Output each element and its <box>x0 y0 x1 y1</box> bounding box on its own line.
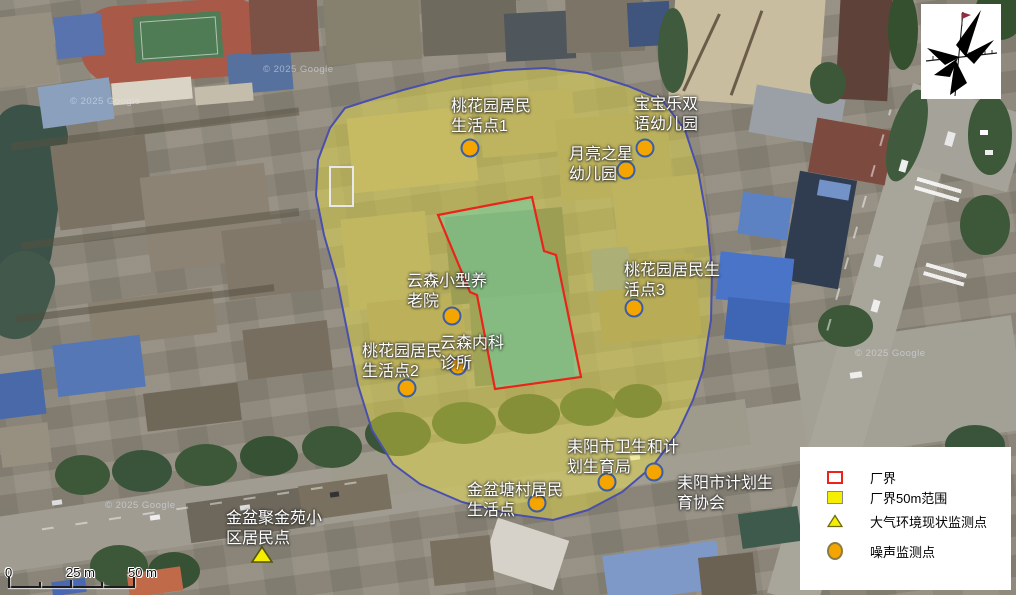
marker-label: 宝宝乐双 语幼儿园 <box>634 95 698 135</box>
satellite-map: © 2025 Google © 2025 Google © 2025 Googl… <box>0 0 1016 595</box>
scale-tick <box>101 582 103 588</box>
marker-label: 耒阳市计划生 育协会 <box>677 474 773 514</box>
noise-monitor-swatch-icon <box>827 542 843 560</box>
scale-label-25m: 25 m <box>66 565 95 580</box>
scale-bar: 0 25 m 50 m <box>0 558 190 595</box>
legend-item-factory-boundary: 厂界 <box>800 469 896 485</box>
legend-item-air-monitor: 大气环境现状监测点 <box>800 513 987 529</box>
noise-monitor-point[interactable] <box>461 139 480 158</box>
court-markings <box>140 16 218 59</box>
marker-label: 金盆聚金苑小 区居民点 <box>226 509 322 549</box>
legend: 厂界 厂界50m范围 大气环境现状监测点 噪声监测点 <box>800 447 1011 590</box>
legend-item-buffer: 厂界50m范围 <box>800 489 947 505</box>
marker-label: 桃花园居民 生活点2 <box>362 342 442 382</box>
noise-marker-icon <box>625 299 644 318</box>
scale-tick <box>133 577 135 588</box>
imagery-watermark: © 2025 Google <box>105 500 176 511</box>
noise-marker-icon <box>461 139 480 158</box>
buffer-swatch-icon <box>827 491 843 504</box>
marker-label: 月亮之星 幼儿园 <box>569 145 633 185</box>
legend-label: 噪声监测点 <box>870 542 935 561</box>
legend-label: 厂界50m范围 <box>870 488 947 507</box>
marker-label: 云森内科 诊所 <box>440 334 504 374</box>
legend-label: 大气环境现状监测点 <box>870 512 987 531</box>
marker-label: 桃花园居民 生活点1 <box>451 97 531 137</box>
marker-label: 金盆塘村居民 生活点 <box>467 481 563 521</box>
factory-boundary-swatch-icon <box>827 471 843 484</box>
empty-annotation-box <box>329 166 354 207</box>
air-monitor-swatch-icon <box>827 514 843 528</box>
compass-box <box>921 4 1001 99</box>
legend-item-noise-monitor: 噪声监测点 <box>800 543 935 559</box>
imagery-watermark: © 2025 Google <box>263 64 334 75</box>
legend-label: 厂界 <box>870 468 896 487</box>
north-arrow-icon <box>921 4 1001 99</box>
noise-marker-icon <box>636 139 655 158</box>
scale-tick <box>70 580 72 588</box>
imagery-watermark: © 2025 Google <box>70 96 141 107</box>
scale-tick <box>39 582 41 588</box>
noise-monitor-point[interactable] <box>636 139 655 158</box>
marker-label: 桃花园居民生 活点3 <box>624 261 720 301</box>
marker-label: 耒阳市卫生和计 划生育局 <box>567 438 679 478</box>
scale-tick <box>8 577 10 588</box>
imagery-watermark: © 2025 Google <box>855 348 926 359</box>
marker-label: 云森小型养 老院 <box>407 272 487 312</box>
noise-monitor-point[interactable] <box>625 299 644 318</box>
